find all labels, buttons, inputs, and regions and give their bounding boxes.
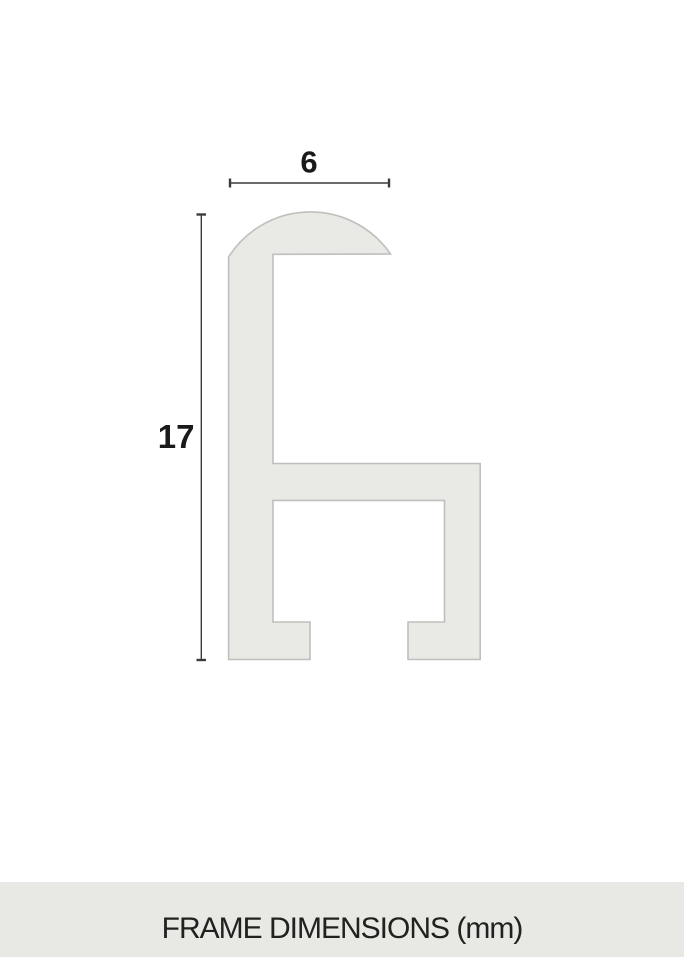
svg-text:17: 17	[158, 418, 195, 455]
svg-text:6: 6	[300, 145, 317, 180]
